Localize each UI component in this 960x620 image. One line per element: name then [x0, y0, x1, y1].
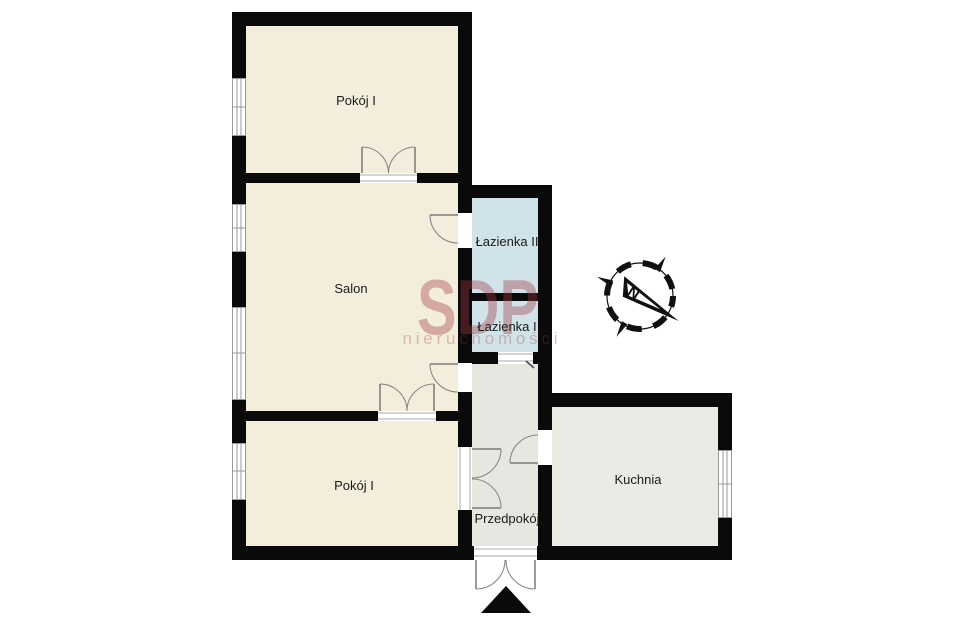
label-pokoj-top: Pokój I: [336, 93, 376, 108]
window: [233, 308, 246, 400]
label-pokoj-bottom: Pokój I: [334, 478, 374, 493]
door-opening: [458, 363, 472, 392]
wall-segment: [458, 392, 472, 447]
wall-segment: [538, 393, 732, 407]
wall-segment: [458, 510, 472, 560]
wall-segment: [718, 393, 732, 450]
window: [233, 444, 246, 500]
floor-plan-svg: SDP nieruchomości Pokój I Salon Pokój I …: [0, 0, 960, 620]
compass-icon: N: [597, 257, 683, 337]
wall-segment: [417, 173, 458, 183]
wall-segment: [458, 352, 498, 364]
window: [719, 451, 732, 518]
wall-segment: [246, 173, 360, 183]
label-lazienka-1: Łazienka I: [477, 319, 536, 334]
wall-segment: [246, 411, 378, 421]
wall-segment: [232, 400, 246, 443]
wall-segment: [232, 12, 472, 26]
entrance-double-door: [476, 560, 535, 589]
window: [233, 79, 246, 136]
floor-plan-image: SDP nieruchomości Pokój I Salon Pokój I …: [0, 0, 960, 620]
wall-segment: [718, 518, 732, 560]
entrance-arrow: [481, 586, 531, 613]
watermark: SDP nieruchomości: [403, 263, 558, 351]
wall-segment: [538, 465, 552, 546]
wall-segment: [232, 546, 474, 560]
window: [233, 205, 246, 252]
wall-segment: [232, 136, 246, 204]
label-kuchnia: Kuchnia: [615, 472, 663, 487]
entrance-opening: [474, 546, 537, 560]
label-przedpokoj: Przedpokój: [474, 511, 539, 526]
label-salon: Salon: [334, 281, 367, 296]
wall-segment: [232, 252, 246, 307]
wall-segment: [458, 185, 552, 198]
label-lazienka-2: Łazienka II: [476, 234, 539, 249]
door-opening: [538, 430, 552, 465]
wall-segment: [232, 12, 246, 78]
wall-segment: [436, 411, 458, 421]
wall-segment: [537, 546, 732, 560]
wall-segment: [458, 12, 472, 213]
door-opening: [458, 213, 472, 248]
